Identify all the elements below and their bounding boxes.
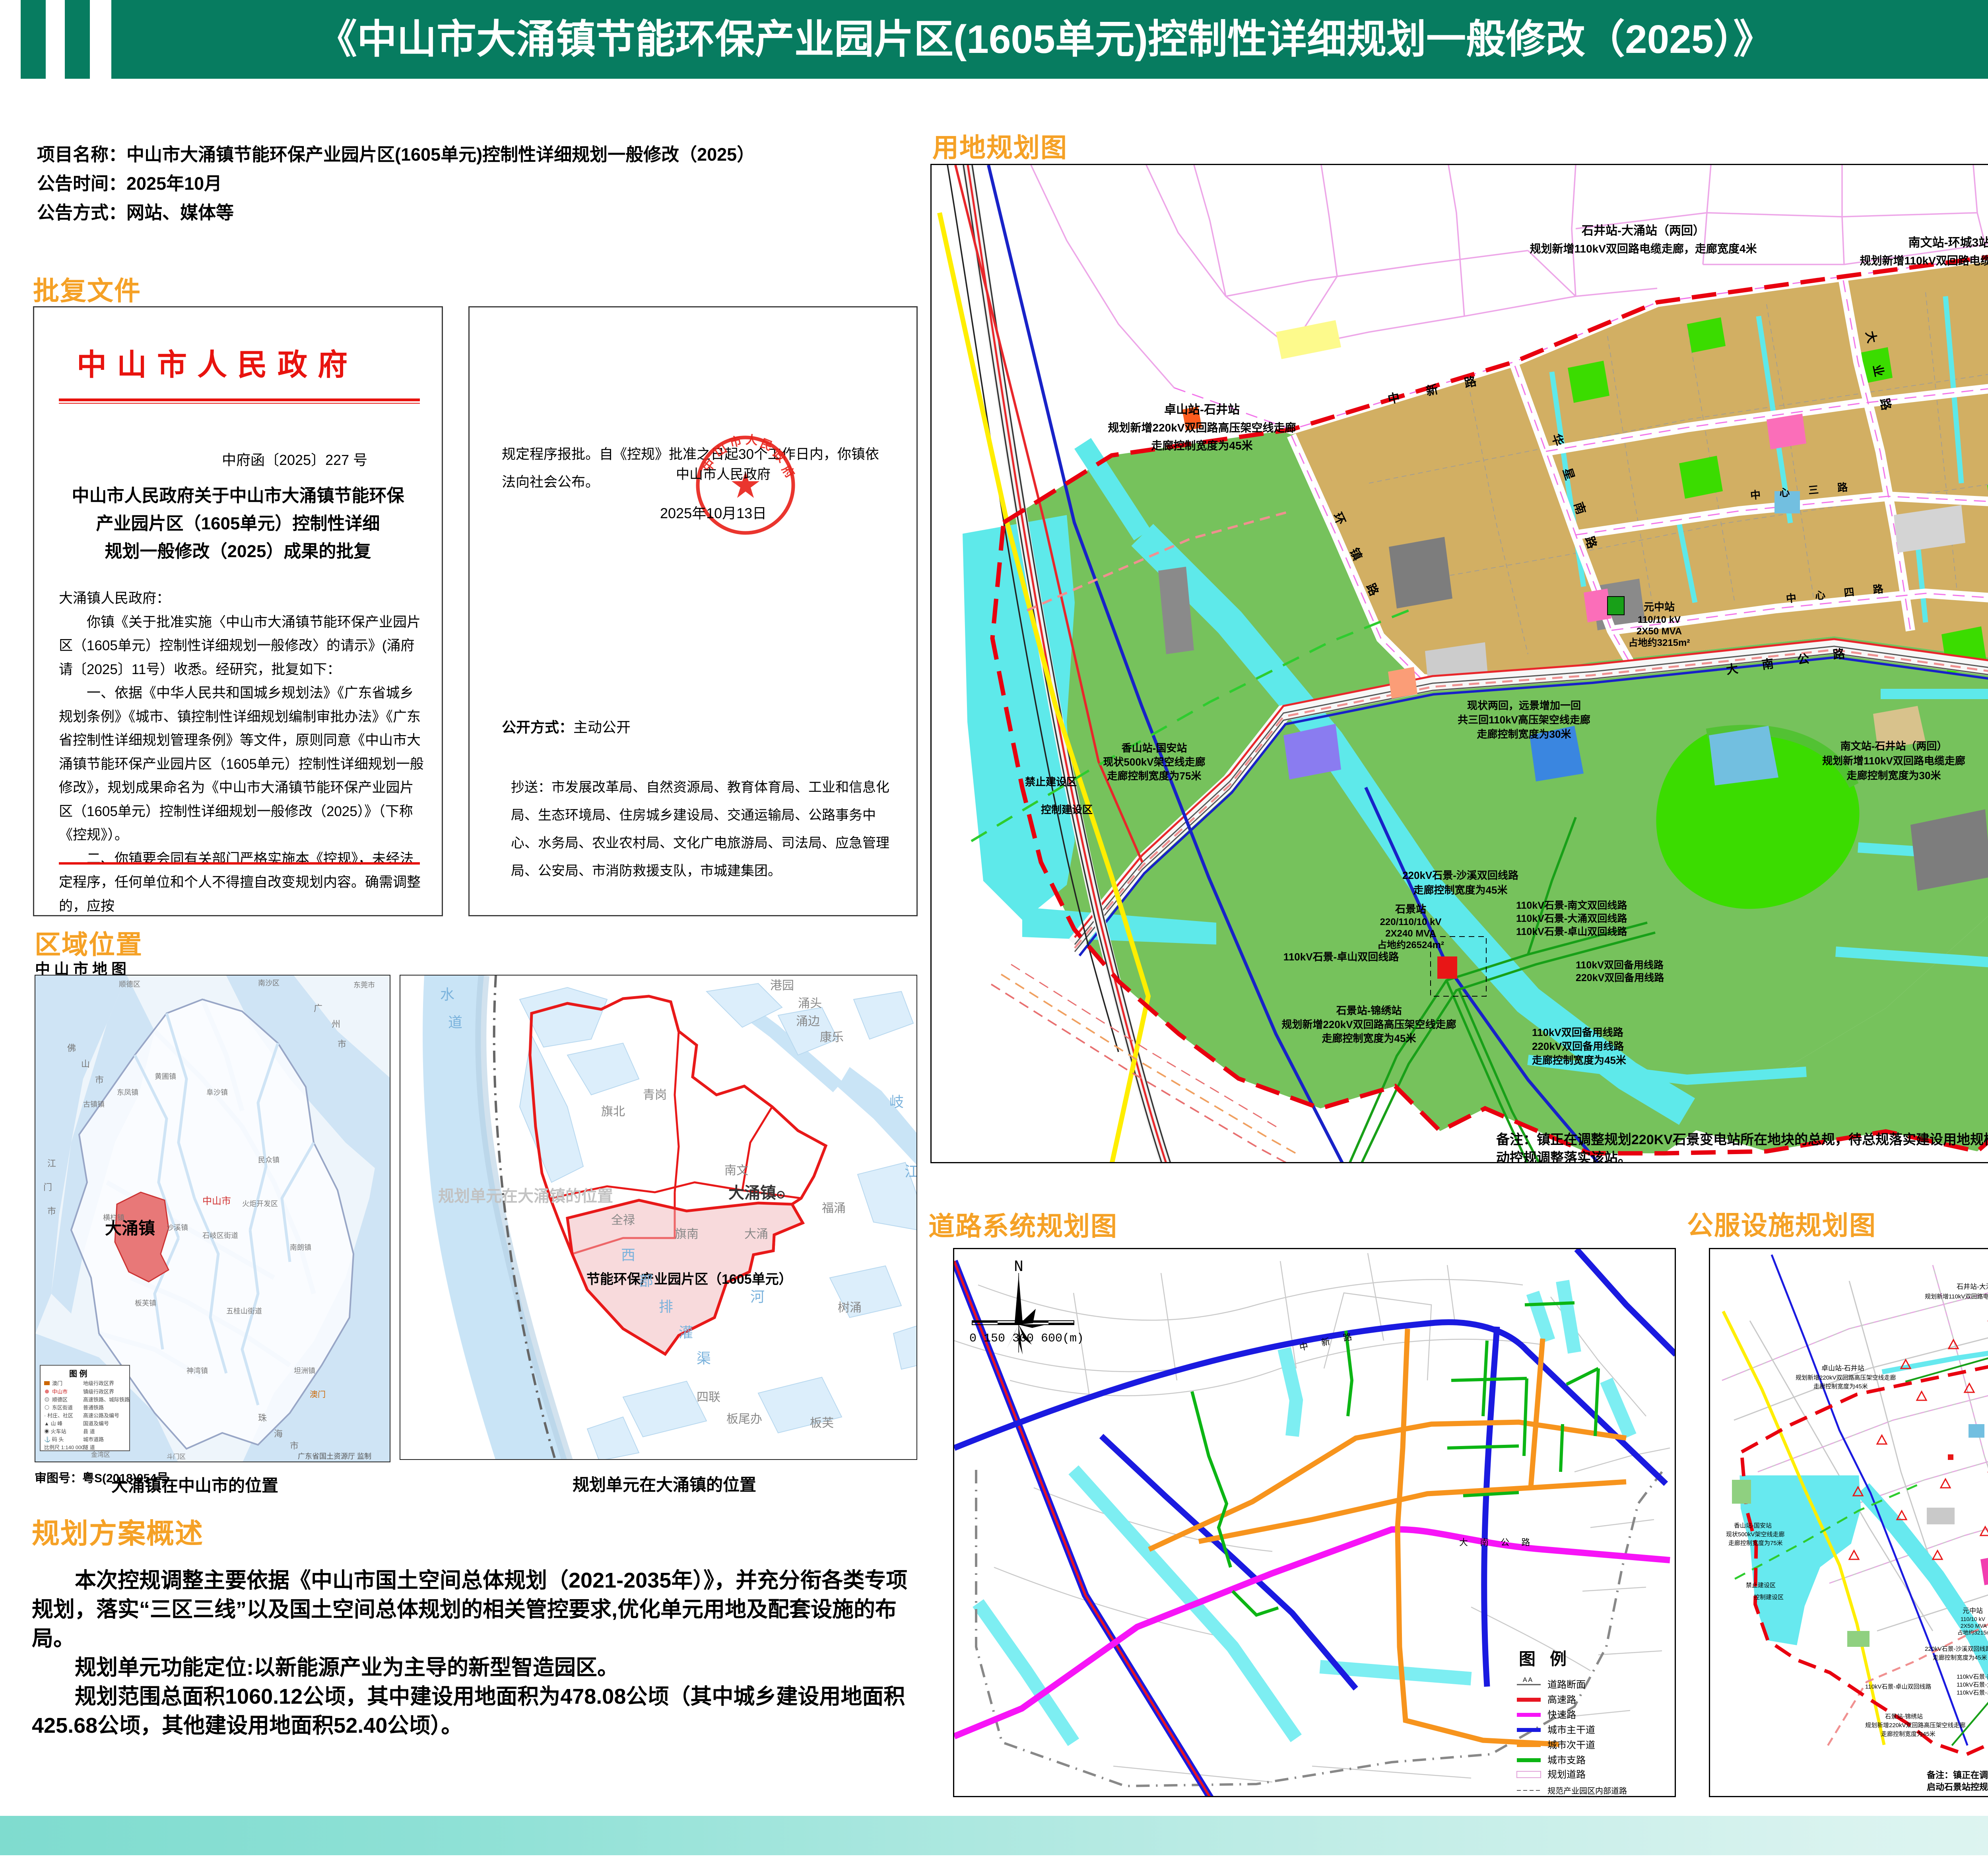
svg-text:规划新增220kV双回路高压架空线走廊: 规划新增220kV双回路高压架空线走廊: [1865, 1722, 1966, 1729]
svg-text:110kV石景-卓山双回线路: 110kV石景-卓山双回线路: [1283, 951, 1399, 963]
svg-text:走廊控制宽度为45米: 走廊控制宽度为45米: [1933, 1654, 1987, 1661]
svg-text:▲ 山 峰: ▲ 山 峰: [44, 1421, 62, 1427]
svg-text:备注：镇正在调整规划220KV石景变电站所在地块的总规，待总: 备注：镇正在调整规划220KV石景变电站所在地块的总规，待总规落实建设用地规模后…: [1496, 1132, 1988, 1147]
svg-text:火炬开发区: 火炬开发区: [242, 1200, 278, 1208]
svg-text:走廊控制宽度为75米: 走廊控制宽度为75米: [1107, 770, 1202, 782]
svg-text:禁止建设区: 禁止建设区: [1025, 776, 1077, 788]
svg-text:城市主干道: 城市主干道: [1547, 1725, 1595, 1736]
svg-text:普通铁路: 普通铁路: [83, 1405, 104, 1411]
svg-text:走廊控制宽度为30米: 走廊控制宽度为30米: [1477, 728, 1571, 740]
svg-text:东凤镇: 东凤镇: [117, 1088, 138, 1096]
svg-text:节能环保产业园片区（1605单元）: 节能环保产业园片区（1605单元）: [586, 1271, 792, 1287]
svg-text:板尾办: 板尾办: [726, 1413, 762, 1426]
svg-text:现状两回，远景增加一回: 现状两回，远景增加一回: [1467, 700, 1581, 711]
svg-text:110kV石景-卓山双回线路: 110kV石景-卓山双回线路: [1957, 1689, 1988, 1696]
svg-text:110kV双回备用线路: 110kV双回备用线路: [1576, 959, 1664, 971]
svg-text:人: 人: [745, 433, 758, 447]
svg-text:南朗镇: 南朗镇: [290, 1244, 311, 1252]
svg-text:220kV双回备用线路: 220kV双回备用线路: [1532, 1040, 1624, 1052]
svg-text:坦洲镇: 坦洲镇: [294, 1367, 315, 1375]
svg-text:石景站-锦绣站: 石景站-锦绣站: [1885, 1713, 1923, 1720]
svg-text:阜沙镇: 阜沙镇: [206, 1088, 228, 1096]
svg-text:高速铁路、城际铁路: 高速铁路、城际铁路: [83, 1397, 130, 1403]
svg-text:规划新增220kV双回路高压架空线走廊: 规划新增220kV双回路高压架空线走廊: [1108, 421, 1296, 434]
svg-text:部: 部: [639, 1273, 653, 1289]
svg-text:香山站-国安站: 香山站-国安站: [1734, 1522, 1772, 1529]
svg-text:道: 道: [448, 1014, 462, 1030]
svg-text:南文站-环城3站（两回）: 南文站-环城3站（两回）: [1908, 236, 1988, 249]
svg-text:板芙镇: 板芙镇: [135, 1299, 156, 1307]
svg-text:大涌镇: 大涌镇: [105, 1219, 155, 1238]
svg-text:元中站: 元中站: [1644, 601, 1675, 613]
svg-text:规划新增220kV双回路高压架空线走廊: 规划新增220kV双回路高压架空线走廊: [1281, 1018, 1456, 1030]
svg-text:县 道: 县 道: [83, 1429, 95, 1434]
svg-text:110kV石景-南文双回线路: 110kV石景-南文双回线路: [1516, 900, 1627, 911]
svg-text:海: 海: [274, 1429, 283, 1439]
svg-text:启动石景站控规调整，落实该站用地。: 启动石景站控规调整，落实该站用地。: [1927, 1782, 1988, 1792]
svg-text:大 南 公 路: 大 南 公 路: [1459, 1537, 1535, 1547]
svg-text:中山市: 中山市: [202, 1196, 231, 1207]
svg-text:石景站: 石景站: [1395, 903, 1426, 915]
svg-text:110kV双回备用线路: 110kV双回备用线路: [1532, 1026, 1624, 1038]
svg-text:东莞市: 东莞市: [353, 981, 375, 989]
svg-text:大涌: 大涌: [744, 1228, 768, 1241]
svg-text:澳门: 澳门: [52, 1380, 62, 1386]
svg-text:水: 水: [440, 986, 454, 1003]
svg-text:南文站-石井站（两回）: 南文站-石井站（两回）: [1840, 740, 1947, 752]
svg-text:山: 山: [81, 1059, 90, 1069]
svg-text:市: 市: [338, 1039, 346, 1049]
svg-text:占地约3215m²: 占地约3215m²: [1629, 637, 1690, 648]
svg-text:顺德区: 顺德区: [119, 980, 140, 988]
svg-text:220/110/10 kV: 220/110/10 kV: [1380, 917, 1442, 927]
svg-text:规划新增110kV双回路电缆走廊，走廊宽度4米: 规划新增110kV双回路电缆走廊，走廊宽度4米: [1860, 254, 1988, 267]
svg-text:现状500kV架空线走廊: 现状500kV架空线走廊: [1726, 1531, 1785, 1538]
svg-text:2X50 MVA: 2X50 MVA: [1637, 626, 1682, 637]
svg-text:道路断面: 道路断面: [1547, 1679, 1586, 1690]
svg-text:涌头: 涌头: [798, 997, 822, 1010]
svg-text:110kV石景-卓山双回线路: 110kV石景-卓山双回线路: [1516, 926, 1627, 937]
svg-text:110kV石景-大涌双回线路: 110kV石景-大涌双回线路: [1957, 1681, 1988, 1688]
svg-text:市: 市: [95, 1075, 104, 1085]
svg-text:香山站-国安站: 香山站-国安站: [1122, 742, 1187, 754]
svg-text:渠: 渠: [697, 1350, 711, 1366]
svg-text:现状500kV架空线走廊: 现状500kV架空线走廊: [1103, 756, 1205, 768]
svg-text:涌边: 涌边: [796, 1015, 820, 1028]
svg-text:岐: 岐: [889, 1094, 904, 1110]
svg-text:规划新增110kV双回路电缆走廊，走廊宽度4米: 规划新增110kV双回路电缆走廊，走廊宽度4米: [1925, 1293, 1988, 1300]
svg-text:走廊控制宽度为45米: 走廊控制宽度为45米: [1813, 1383, 1868, 1390]
svg-text:动控规调整落实该站。: 动控规调整落实该站。: [1496, 1151, 1631, 1163]
svg-text:康乐: 康乐: [820, 1031, 844, 1044]
svg-text:斗门区: 斗门区: [167, 1453, 186, 1460]
svg-text:110kV石景-南文双回线路: 110kV石景-南文双回线路: [1957, 1673, 1988, 1680]
svg-text:黄圃镇: 黄圃镇: [155, 1073, 176, 1081]
svg-text:走廊控制宽度为30米: 走廊控制宽度为30米: [1847, 770, 1941, 781]
svg-text:控制建设区: 控制建设区: [1041, 804, 1093, 816]
svg-text:石井站-大涌站（两回）: 石井站-大涌站（两回）: [1957, 1283, 1988, 1291]
svg-text:国道及编号: 国道及编号: [83, 1421, 109, 1427]
svg-text:220kV石景-沙溪双回线路: 220kV石景-沙溪双回线路: [1925, 1646, 1988, 1652]
svg-text:110/10 kV: 110/10 kV: [1638, 614, 1681, 625]
svg-text:州: 州: [332, 1019, 340, 1029]
svg-text:灌: 灌: [679, 1324, 693, 1341]
svg-text:走廊控制宽度为45米: 走廊控制宽度为45米: [1413, 884, 1508, 896]
svg-text:五桂山街道: 五桂山街道: [226, 1307, 262, 1315]
svg-text:珠: 珠: [258, 1413, 267, 1423]
svg-text:全禄: 全禄: [611, 1214, 635, 1227]
svg-text:图 例: 图 例: [69, 1369, 87, 1378]
svg-text:市: 市: [47, 1206, 56, 1216]
svg-text:110kV石景-卓山双回线路: 110kV石景-卓山双回线路: [1865, 1683, 1931, 1690]
svg-text:高速路: 高速路: [1547, 1695, 1576, 1705]
svg-text:2X50 MVA: 2X50 MVA: [1961, 1623, 1987, 1629]
svg-text:青岗: 青岗: [643, 1088, 667, 1102]
svg-text:· 村庄、社区: · 村庄、社区: [44, 1413, 73, 1419]
svg-text:共三回110kV高压架空线走廊: 共三回110kV高压架空线走廊: [1458, 714, 1590, 726]
svg-text:金湾区: 金湾区: [91, 1451, 110, 1458]
svg-text:镇级行政区界: 镇级行政区界: [83, 1389, 114, 1395]
svg-text:石景站-锦绣站: 石景站-锦绣站: [1336, 1005, 1402, 1016]
svg-text:220kV双回备用线路: 220kV双回备用线路: [1576, 972, 1664, 983]
svg-text:顺德区: 顺德区: [52, 1397, 68, 1403]
svg-text:佛: 佛: [67, 1043, 76, 1053]
svg-text:规划道路: 规划道路: [1547, 1769, 1586, 1780]
svg-text:江: 江: [47, 1158, 56, 1168]
svg-text:控制建设区: 控制建设区: [1754, 1594, 1784, 1601]
svg-text:古镇镇: 古镇镇: [83, 1100, 105, 1108]
svg-text:走廊控制宽度为45米: 走廊控制宽度为45米: [1151, 439, 1252, 452]
svg-text:◉ 火车站: ◉ 火车站: [44, 1429, 66, 1434]
svg-text:快速路: 快速路: [1547, 1710, 1576, 1720]
svg-text:占地约26524m²: 占地约26524m²: [1377, 939, 1444, 950]
svg-text:走廊控制宽度为45米: 走廊控制宽度为45米: [1322, 1032, 1416, 1044]
svg-text:地级行政区界: 地级行政区界: [83, 1380, 114, 1386]
svg-text:市: 市: [290, 1441, 299, 1451]
svg-text:板芙: 板芙: [810, 1417, 834, 1430]
svg-text:⚓ 码 头: ⚓ 码 头: [44, 1436, 64, 1442]
svg-text:门: 门: [43, 1182, 52, 1192]
svg-text:走廊控制宽度为45米: 走廊控制宽度为45米: [1532, 1054, 1626, 1066]
svg-text:澳门: 澳门: [310, 1390, 326, 1399]
svg-text:禁止建设区: 禁止建设区: [1746, 1582, 1776, 1589]
svg-text:大涌镇⊙: 大涌镇⊙: [728, 1184, 785, 1202]
svg-text:城市次干道: 城市次干道: [1547, 1740, 1595, 1751]
svg-text:2X240 MVA: 2X240 MVA: [1385, 928, 1436, 939]
svg-text:民众镇: 民众镇: [258, 1156, 280, 1164]
svg-text:110kV石景-大涌双回线路: 110kV石景-大涌双回线路: [1516, 913, 1627, 924]
svg-text:比例尺 1:140 000: 比例尺 1:140 000: [44, 1444, 84, 1450]
svg-text:东区街道: 东区街道: [52, 1405, 73, 1411]
svg-text:福涌: 福涌: [822, 1202, 846, 1215]
svg-text:城市支路: 城市支路: [1547, 1755, 1586, 1766]
svg-text:江: 江: [905, 1163, 917, 1180]
svg-text:南沙区: 南沙区: [258, 979, 280, 987]
svg-text:A A: A A: [1523, 1677, 1532, 1683]
svg-text:西: 西: [621, 1247, 635, 1263]
svg-text:广: 广: [314, 1003, 322, 1013]
svg-text:110/10 kV: 110/10 kV: [1961, 1616, 1986, 1622]
svg-text:石岐区街道: 石岐区街道: [202, 1232, 238, 1240]
svg-text:旗北: 旗北: [601, 1105, 625, 1118]
svg-text:横栏镇: 横栏镇: [103, 1214, 124, 1222]
svg-text:走廊控制宽度为45米: 走廊控制宽度为45米: [1881, 1731, 1936, 1738]
svg-text:旗南: 旗南: [675, 1228, 699, 1241]
svg-text:石井站-大涌站（两回）: 石井站-大涌站（两回）: [1581, 224, 1705, 237]
svg-text:沙溪镇: 沙溪镇: [167, 1224, 188, 1232]
svg-text:高速公路及编号: 高速公路及编号: [83, 1413, 119, 1419]
svg-text:排: 排: [659, 1298, 673, 1315]
svg-text:广东省国土资源厅 监制: 广东省国土资源厅 监制: [298, 1452, 371, 1460]
svg-text:占地约3215m²: 占地约3215m²: [1957, 1629, 1988, 1636]
svg-text:220kV石景-沙溪双回线路: 220kV石景-沙溪双回线路: [1402, 869, 1519, 881]
svg-text:四联: 四联: [697, 1391, 720, 1404]
svg-text:规划新增110kV双回路电缆走廊，走廊宽度4米: 规划新增110kV双回路电缆走廊，走廊宽度4米: [1530, 242, 1757, 255]
svg-text:规划新增110kV双回路电缆走廊: 规划新增110kV双回路电缆走廊: [1822, 755, 1965, 767]
svg-text:走廊控制宽度为75米: 走廊控制宽度为75米: [1728, 1540, 1783, 1547]
svg-text:元中站: 元中站: [1963, 1607, 1983, 1615]
svg-text:图例: 图例: [1519, 1650, 1581, 1668]
svg-text:城市道路: 城市道路: [83, 1436, 104, 1442]
svg-text:河: 河: [750, 1289, 765, 1305]
svg-text:规划新增220kV双回路高压架空线走廊: 规划新增220kV双回路高压架空线走廊: [1796, 1374, 1896, 1381]
svg-text:政: 政: [770, 447, 788, 465]
svg-text:港园: 港园: [770, 979, 794, 992]
svg-text:规范产业园区内部道路: 规范产业园区内部道路: [1547, 1786, 1627, 1796]
svg-text:卓山站-石井站: 卓山站-石井站: [1821, 1364, 1864, 1372]
svg-text:南文: 南文: [724, 1164, 748, 1177]
svg-text:山: 山: [712, 442, 729, 459]
svg-text:规划单元在大涌镇的位置: 规划单元在大涌镇的位置: [438, 1188, 613, 1205]
svg-text:中山市: 中山市: [52, 1389, 68, 1395]
svg-text:神湾镇: 神湾镇: [186, 1367, 208, 1375]
svg-text:卓山站-石井站: 卓山站-石井站: [1164, 403, 1240, 416]
svg-text:隧 道: 隧 道: [83, 1444, 95, 1450]
svg-text:备注：镇正在调整规划220KV石景变电站所在地块的总规，待总: 备注：镇正在调整规划220KV石景变电站所在地块的总规，待总规落实建设用地规模后…: [1926, 1770, 1988, 1780]
svg-text:0 150 300 600(m): 0 150 300 600(m): [969, 1332, 1084, 1345]
svg-text:树涌: 树涌: [838, 1301, 862, 1314]
